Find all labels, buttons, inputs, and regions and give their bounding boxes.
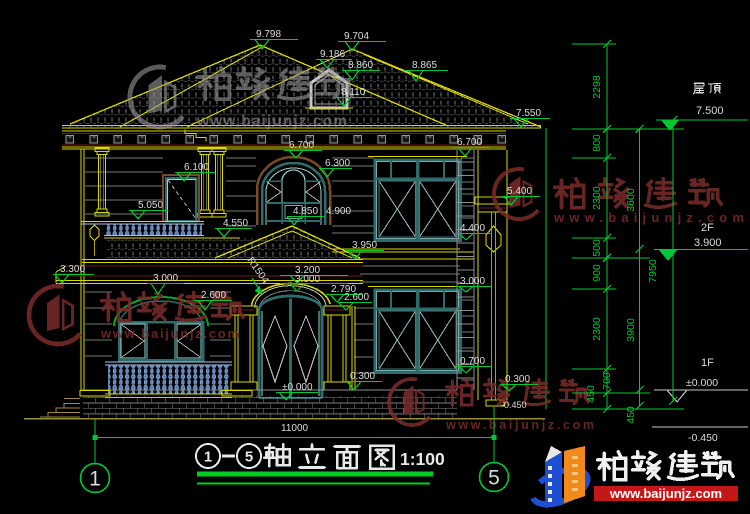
svg-text:8.865: 8.865 xyxy=(412,60,437,71)
svg-text:1:100: 1:100 xyxy=(400,449,445,469)
svg-text:7.500: 7.500 xyxy=(696,105,724,117)
svg-text:3900: 3900 xyxy=(625,318,637,342)
svg-text:450: 450 xyxy=(585,385,597,403)
svg-text:3600: 3600 xyxy=(625,188,637,212)
svg-text:3.000: 3.000 xyxy=(460,276,485,287)
svg-text:1: 1 xyxy=(204,449,212,466)
svg-text:7950: 7950 xyxy=(647,259,659,283)
svg-text:4.550: 4.550 xyxy=(223,218,248,229)
svg-text:6.700: 6.700 xyxy=(289,140,314,151)
svg-text:500: 500 xyxy=(591,239,603,257)
svg-text:3.950: 3.950 xyxy=(352,240,377,251)
svg-text:0.300: 0.300 xyxy=(350,371,375,382)
svg-text:-0.450: -0.450 xyxy=(501,400,527,410)
svg-text:8.110: 8.110 xyxy=(341,87,366,98)
svg-text:2.600: 2.600 xyxy=(344,292,369,303)
svg-text:0.300: 0.300 xyxy=(505,374,530,385)
svg-text:450: 450 xyxy=(625,406,637,424)
svg-text:800: 800 xyxy=(591,134,603,152)
svg-text:2300: 2300 xyxy=(591,186,603,210)
svg-text:6.700: 6.700 xyxy=(457,137,482,148)
svg-text:3.900: 3.900 xyxy=(694,237,722,249)
svg-text:±0.000: ±0.000 xyxy=(686,377,718,389)
svg-text:4.900: 4.900 xyxy=(326,206,351,217)
svg-text:7.550: 7.550 xyxy=(516,108,541,119)
svg-text:6.300: 6.300 xyxy=(325,158,350,169)
svg-text:9.798: 9.798 xyxy=(256,29,281,40)
svg-text:5: 5 xyxy=(488,467,500,490)
svg-text:2F: 2F xyxy=(701,222,714,234)
svg-text:3.000: 3.000 xyxy=(153,273,178,284)
svg-text:±0.000: ±0.000 xyxy=(282,382,313,393)
svg-text:www.baijunjz.com: www.baijunjz.com xyxy=(196,113,347,130)
svg-text:9.704: 9.704 xyxy=(344,31,369,42)
svg-text:11000: 11000 xyxy=(281,423,309,434)
svg-text:900: 900 xyxy=(591,264,603,282)
svg-text:700: 700 xyxy=(601,372,613,390)
svg-text:www.baijunjz.com: www.baijunjz.com xyxy=(609,486,722,501)
svg-text:9.186: 9.186 xyxy=(320,49,345,60)
svg-text:5.400: 5.400 xyxy=(507,186,532,197)
svg-text:3.300: 3.300 xyxy=(60,264,85,275)
svg-text:5.050: 5.050 xyxy=(138,200,163,211)
svg-text:1F: 1F xyxy=(701,357,714,369)
svg-text:2.600: 2.600 xyxy=(201,290,226,301)
svg-text:5: 5 xyxy=(245,449,253,466)
svg-text:6.100: 6.100 xyxy=(184,162,209,173)
svg-text:8.860: 8.860 xyxy=(348,60,373,71)
svg-text:-0.450: -0.450 xyxy=(688,432,718,444)
svg-text:4.400: 4.400 xyxy=(460,223,485,234)
svg-text:1: 1 xyxy=(89,468,101,491)
svg-text:2298: 2298 xyxy=(591,75,603,99)
svg-text:4.850: 4.850 xyxy=(293,206,318,217)
svg-text:0.700: 0.700 xyxy=(460,356,485,367)
svg-text:2300: 2300 xyxy=(591,317,603,341)
